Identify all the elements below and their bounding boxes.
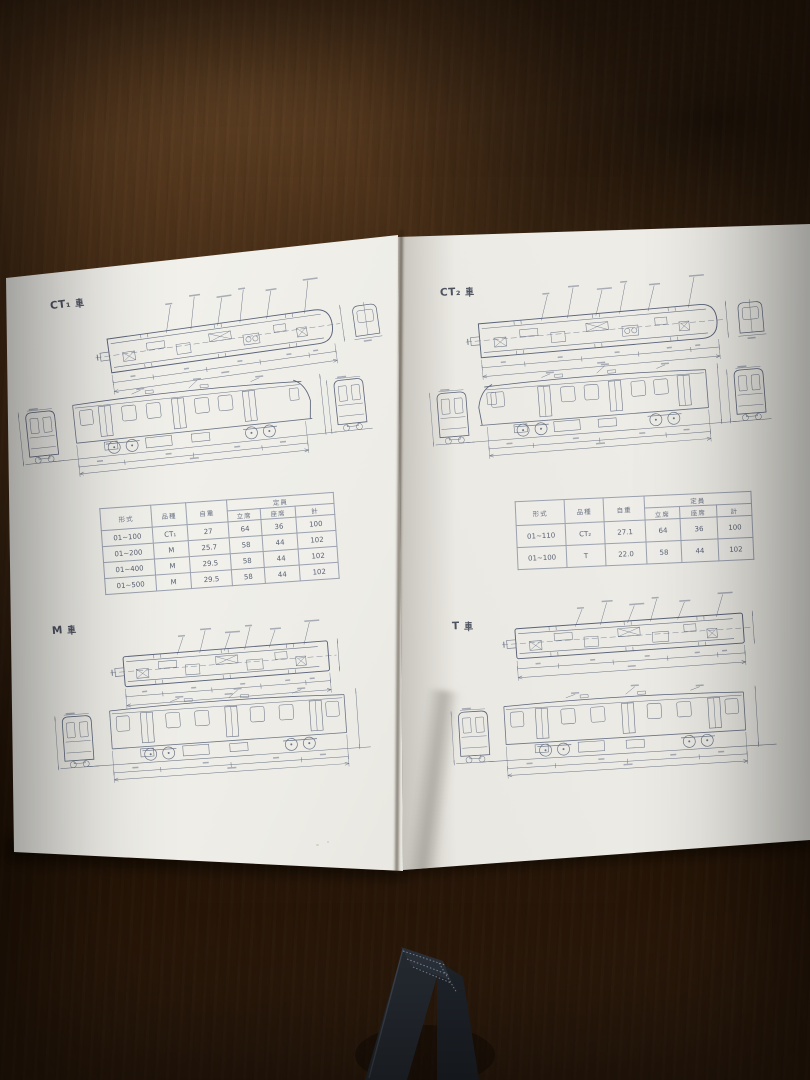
- cell-series: M: [156, 573, 192, 591]
- right-spec-table: 形式 品種 自重 定員 立席 座席 計 01~110 CT₂ 27.1 64 3…: [515, 491, 755, 570]
- page-title-m-text: M: [52, 624, 64, 637]
- col-header-model: 形式: [515, 500, 565, 526]
- kanji-kuruma-glyph: [65, 623, 77, 635]
- col-header-series: 品種: [564, 498, 604, 524]
- right-spec-table-wrap: 形式 品種 自重 定員 立席 座席 計 01~110 CT₂ 27.1 64 3…: [515, 491, 755, 570]
- left-spec-table-wrap: 形式 品種 自重 定員 立席 座席 計 01~100 CT₁ 27 64 36 …: [99, 492, 339, 595]
- photo-of-spec-sheets: CT₂ 形式 品種 自重 定員 立席 座席 計 01~110: [0, 0, 810, 1080]
- cell-model: 01~500: [105, 575, 157, 595]
- cell-standing: 58: [231, 567, 265, 585]
- cell-weight: 27.1: [604, 520, 646, 544]
- cell-standing: 58: [646, 540, 682, 564]
- strap-right-band: [437, 960, 479, 1080]
- camera-strap: [345, 935, 515, 1080]
- cell-model: 01~110: [516, 524, 566, 548]
- cell-total: 102: [718, 537, 754, 561]
- cell-seated: 36: [680, 517, 718, 541]
- cell-weight: 29.5: [190, 570, 232, 589]
- page-title-ct1-text: CT₁: [49, 298, 71, 312]
- left-spec-table: 形式 品種 自重 定員 立席 座席 計 01~100 CT₁ 27 64 36 …: [99, 492, 339, 595]
- paper-speck: [327, 841, 329, 843]
- cell-standing: 64: [645, 519, 681, 543]
- ct1-side-view-drawing: [3, 356, 400, 506]
- page-title-t-text: T: [452, 620, 460, 632]
- cell-seated: 44: [264, 565, 300, 583]
- cell-model: 01~100: [517, 545, 567, 569]
- t-side-view-drawing: [445, 674, 783, 804]
- page-title-m: M: [52, 623, 78, 637]
- paper-speck: [316, 844, 319, 846]
- m-side-view-drawing: [49, 677, 374, 807]
- col-header-series: 品種: [151, 503, 187, 527]
- col-header-weight: 自重: [186, 500, 228, 525]
- cell-total: 100: [717, 515, 753, 539]
- kanji-kuruma-glyph: [462, 620, 473, 631]
- page-title-t: T: [452, 620, 474, 633]
- cell-series: T: [566, 544, 606, 568]
- cell-series: CT₂: [565, 522, 605, 546]
- cell-weight: 22.0: [605, 542, 647, 566]
- cell-total: 102: [299, 562, 339, 581]
- col-header-weight: 自重: [603, 496, 645, 522]
- crease-shading: [398, 224, 456, 872]
- cell-seated: 44: [681, 539, 719, 563]
